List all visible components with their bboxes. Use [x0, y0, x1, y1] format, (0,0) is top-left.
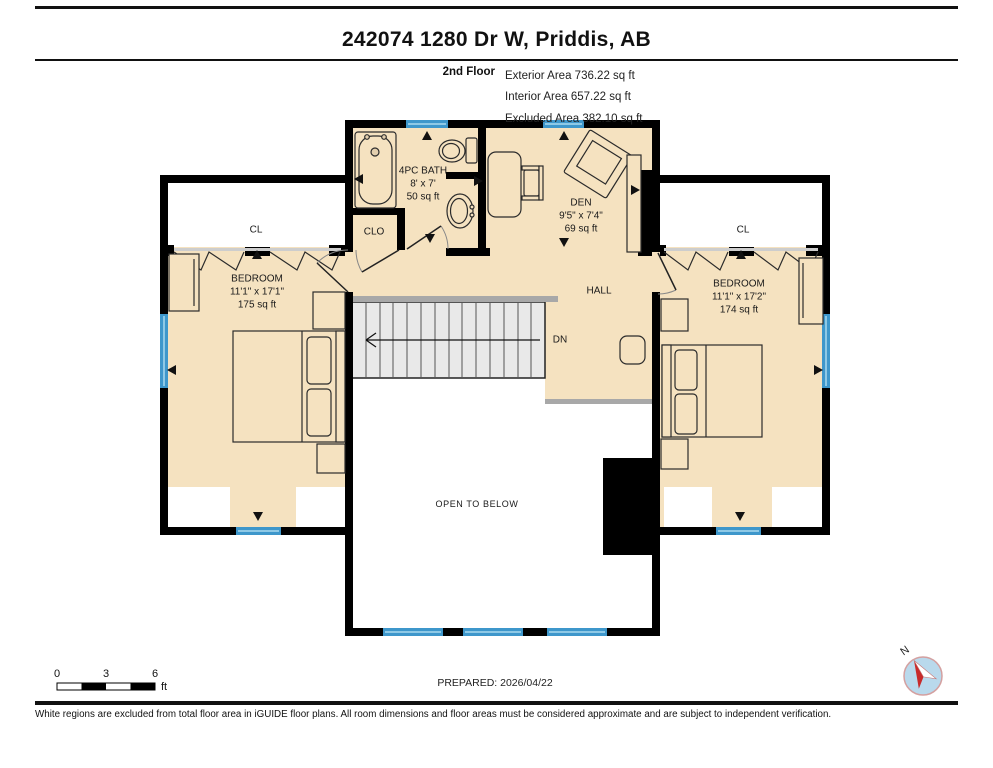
desk-chair: [522, 166, 543, 200]
closet-right-region: [660, 183, 822, 247]
room-area: 50 sq ft: [399, 191, 447, 204]
room-dims: 11'1" x 17'1": [230, 286, 284, 299]
stair-railing: [352, 296, 558, 302]
disclaimer-text: White regions are excluded from total fl…: [35, 709, 965, 720]
scale-tick-6: 6: [152, 668, 158, 680]
room-area: 175 sq ft: [230, 299, 284, 312]
hall-label: HALL: [586, 285, 611, 298]
floor-plan-page: 242074 1280 Dr W, Priddis, AB 2nd Floor …: [0, 0, 993, 768]
exterior-area: Exterior Area 736.22 sq ft: [505, 66, 642, 87]
room-name: 4PC BATH: [399, 165, 447, 178]
dresser: [799, 258, 823, 324]
floor-label: 2nd Floor: [300, 66, 495, 78]
scale-bar: [57, 683, 155, 690]
hall-chair: [620, 336, 645, 364]
bathtub-icon: [355, 132, 396, 208]
floor-plan: [0, 0, 993, 768]
window: [236, 527, 281, 535]
window: [716, 527, 761, 535]
cl-left-label: CL: [250, 224, 263, 237]
window: [463, 628, 523, 636]
bed-icon: [662, 345, 762, 437]
room-area: 69 sq ft: [559, 223, 603, 236]
chimney: [603, 458, 652, 555]
room-name: BEDROOM: [230, 273, 284, 286]
area-summary: Exterior Area 736.22 sq ft Interior Area…: [505, 66, 642, 130]
open-to-below-label: OPEN TO BELOW: [436, 499, 519, 511]
page-title: 242074 1280 Dr W, Priddis, AB: [0, 28, 993, 52]
toilet-icon: [439, 138, 477, 163]
window: [383, 628, 443, 636]
bedroom-left-label: BEDROOM 11'1" x 17'1" 175 sq ft: [230, 273, 284, 312]
bath-label: 4PC BATH 8' x 7' 50 sq ft: [399, 165, 447, 204]
nightstand: [661, 439, 688, 469]
room-area: 174 sq ft: [712, 304, 766, 317]
open-below-railing: [545, 399, 652, 404]
window: [822, 314, 830, 388]
window: [547, 628, 607, 636]
compass-icon: [904, 655, 942, 695]
interior-area: Interior Area 657.22 sq ft: [505, 87, 642, 108]
desk: [488, 152, 521, 217]
nightstand: [317, 444, 345, 473]
room-dims: 11'1" x 17'2": [712, 291, 766, 304]
den-label: DEN 9'5" x 7'4" 69 sq ft: [559, 197, 603, 236]
room-name: DEN: [559, 197, 603, 210]
dresser: [169, 254, 199, 311]
stairs-dn-label: DN: [553, 334, 567, 347]
cabinet: [627, 155, 641, 252]
closet-left-region: [168, 183, 345, 247]
bed-icon: [233, 331, 345, 442]
prepared-date: PREPARED: 2026/04/22: [437, 677, 552, 689]
nightstand: [313, 292, 345, 329]
cl-right-label: CL: [737, 224, 750, 237]
scale-tick-3: 3: [103, 668, 109, 680]
scale-tick-0: 0: [54, 668, 60, 680]
clo-label: CLO: [364, 226, 385, 239]
sink-icon: [447, 194, 474, 228]
nightstand: [661, 299, 688, 331]
bedroom-right-label: BEDROOM 11'1" x 17'2" 174 sq ft: [712, 278, 766, 317]
window: [160, 314, 168, 388]
room-name: BEDROOM: [712, 278, 766, 291]
room-dims: 9'5" x 7'4": [559, 210, 603, 223]
scale-unit: ft: [161, 681, 167, 693]
window: [406, 120, 448, 128]
room-dims: 8' x 7': [399, 178, 447, 191]
excluded-area: Excluded Area 382.10 sq ft: [505, 109, 642, 130]
